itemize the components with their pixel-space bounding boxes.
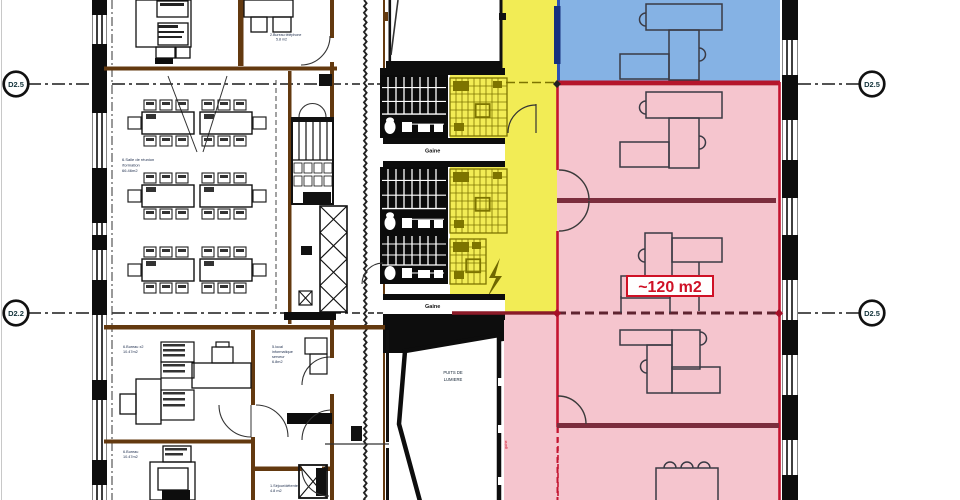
svg-text:10.47m2: 10.47m2 <box>123 350 138 354</box>
svg-text:D2.5: D2.5 <box>8 80 24 89</box>
svg-text:D2.2: D2.2 <box>8 309 24 318</box>
svg-text:/formation: /formation <box>122 163 140 168</box>
svg-text:informatique: informatique <box>272 350 293 354</box>
svg-text:5.local: 5.local <box>272 345 283 349</box>
svg-text:PUITS DE: PUITS DE <box>443 370 463 375</box>
svg-text:1.Séjour/détente: 1.Séjour/détente <box>270 484 298 488</box>
svg-text:Gaine: Gaine <box>425 304 440 310</box>
svg-text:10.47m2: 10.47m2 <box>123 455 138 459</box>
svg-text:5.8 m2: 5.8 m2 <box>276 38 287 42</box>
svg-text:Gaine: Gaine <box>425 149 440 155</box>
svg-text:LUMIERE: LUMIERE <box>444 377 463 382</box>
svg-text:6.Bureau x2: 6.Bureau x2 <box>123 345 143 349</box>
svg-text:6.Bureau: 6.Bureau <box>123 450 138 454</box>
svg-text:2.Bureau téléphone: 2.Bureau téléphone <box>270 33 301 37</box>
svg-text:~120 m2: ~120 m2 <box>638 279 702 296</box>
svg-text:4.8 m2: 4.8 m2 <box>270 489 282 493</box>
svg-text:6.Salle de réunion: 6.Salle de réunion <box>122 157 154 162</box>
svg-text:66.46m2: 66.46m2 <box>122 168 138 173</box>
svg-text:D2.5: D2.5 <box>864 309 880 318</box>
svg-text:serveur: serveur <box>272 355 285 359</box>
svg-text:D2.5: D2.5 <box>864 80 880 89</box>
svg-text:gaine: gaine <box>504 440 508 449</box>
svg-text:6.8m2: 6.8m2 <box>272 360 283 364</box>
